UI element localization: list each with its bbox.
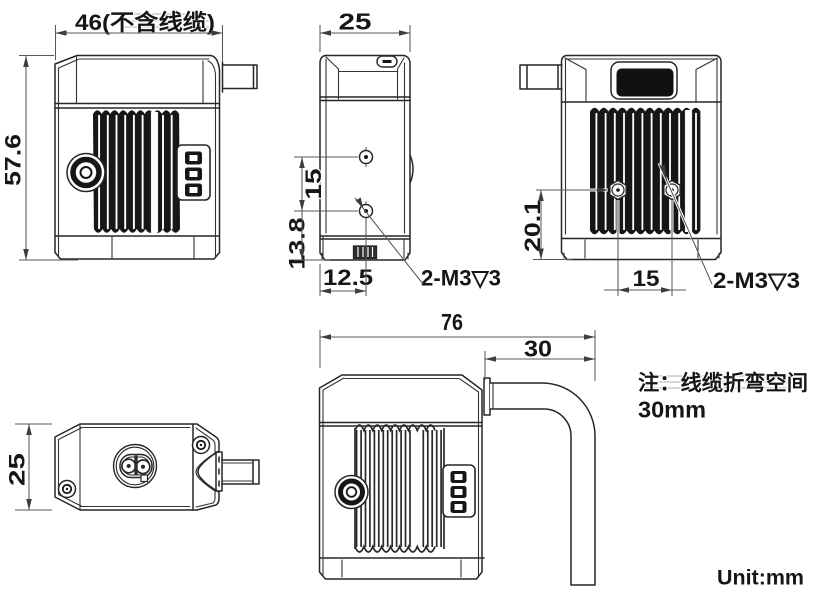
- svg-text:注：线缆折弯空间: 注：线缆折弯空间: [638, 371, 808, 395]
- svg-text:30: 30: [524, 336, 552, 362]
- svg-text:15: 15: [633, 266, 660, 291]
- svg-text:30mm: 30mm: [638, 397, 706, 423]
- svg-text:76: 76: [441, 309, 463, 335]
- svg-text:Unit:mm: Unit:mm: [717, 567, 804, 590]
- svg-text:15: 15: [301, 169, 326, 200]
- svg-text:57.6: 57.6: [1, 134, 26, 186]
- svg-text:2-M3▽3: 2-M3▽3: [713, 268, 800, 293]
- svg-text:46(不含线缆): 46(不含线缆): [75, 10, 215, 35]
- svg-text:13.8: 13.8: [285, 218, 310, 270]
- svg-text:25: 25: [339, 9, 372, 35]
- svg-text:2-M3▽3: 2-M3▽3: [421, 266, 501, 291]
- svg-text:25: 25: [5, 453, 30, 486]
